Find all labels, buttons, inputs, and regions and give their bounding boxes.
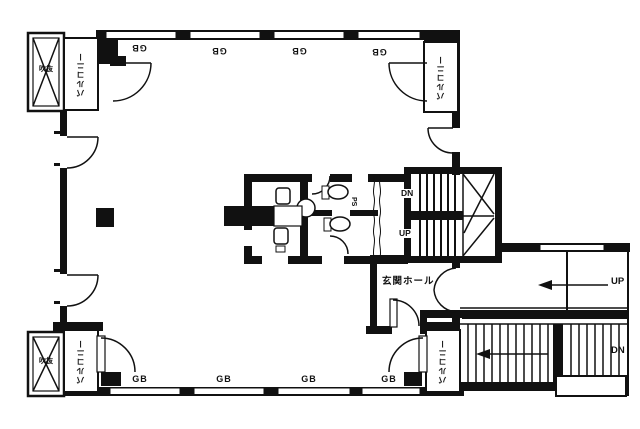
toilet-fixtures xyxy=(274,185,350,252)
floor-plan: バルコニー バルコニー バルコニー バルコニー 吹抜 吹抜 GB GB GB G… xyxy=(0,0,640,429)
external-stair-up-label: UP xyxy=(611,277,624,287)
window-mark: GB xyxy=(366,47,392,56)
balcony-label-bottom-left: バルコニー xyxy=(64,330,98,392)
counter xyxy=(274,206,302,226)
window-mark: GB xyxy=(127,375,153,384)
shaft-partition xyxy=(373,176,380,258)
external-stair-down-label: DN xyxy=(611,346,625,356)
stair-landing xyxy=(556,376,626,396)
balcony-label-top-right: バルコニー xyxy=(424,42,458,112)
window-mark: GB xyxy=(296,375,322,384)
entrance-hall-label: 玄関ホール xyxy=(382,277,435,287)
window-mark: GB xyxy=(211,375,237,384)
toilet-icon xyxy=(276,188,290,204)
external-stair xyxy=(460,243,628,396)
toilet-icon xyxy=(274,228,288,244)
internal-stair-up-label: UP xyxy=(398,229,412,238)
pipe-space-label: PS xyxy=(350,197,357,206)
balcony-label-top-left: バルコニー xyxy=(64,38,98,110)
window-mark: GB xyxy=(206,46,232,55)
toilet-icon xyxy=(330,217,350,231)
void-label-bottom-left: 吹抜 xyxy=(31,358,61,365)
void-label-top-left: 吹抜 xyxy=(31,66,61,73)
internal-stair-down-label: DN xyxy=(400,189,414,198)
down-arrow-icon xyxy=(476,349,548,359)
up-arrow-icon xyxy=(538,280,608,290)
balcony-label-bottom-right: バルコニー xyxy=(426,330,460,392)
window-mark: GB xyxy=(376,375,402,384)
window-mark: GB xyxy=(286,46,312,55)
window-mark: GB xyxy=(126,43,152,52)
toilet-icon xyxy=(328,185,348,199)
